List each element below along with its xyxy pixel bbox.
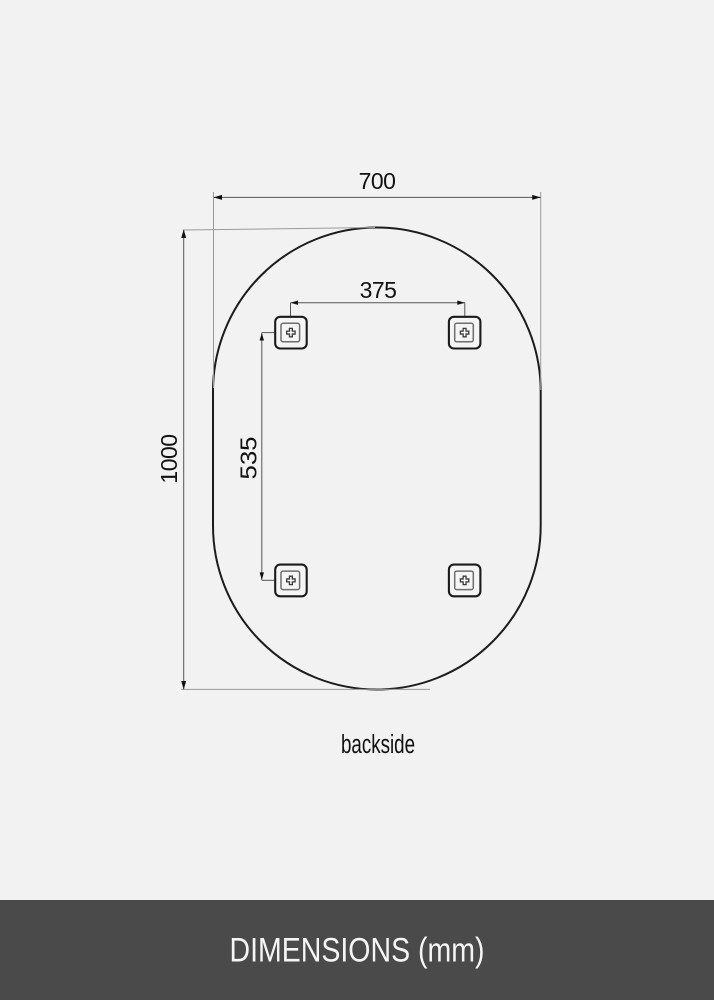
svg-text:DIMENSIONS (mm): DIMENSIONS (mm): [230, 932, 485, 970]
svg-text:1000: 1000: [156, 434, 182, 483]
svg-text:backside: backside: [341, 731, 415, 759]
svg-text:375: 375: [360, 277, 397, 303]
svg-text:535: 535: [236, 437, 262, 480]
svg-text:700: 700: [359, 168, 396, 194]
